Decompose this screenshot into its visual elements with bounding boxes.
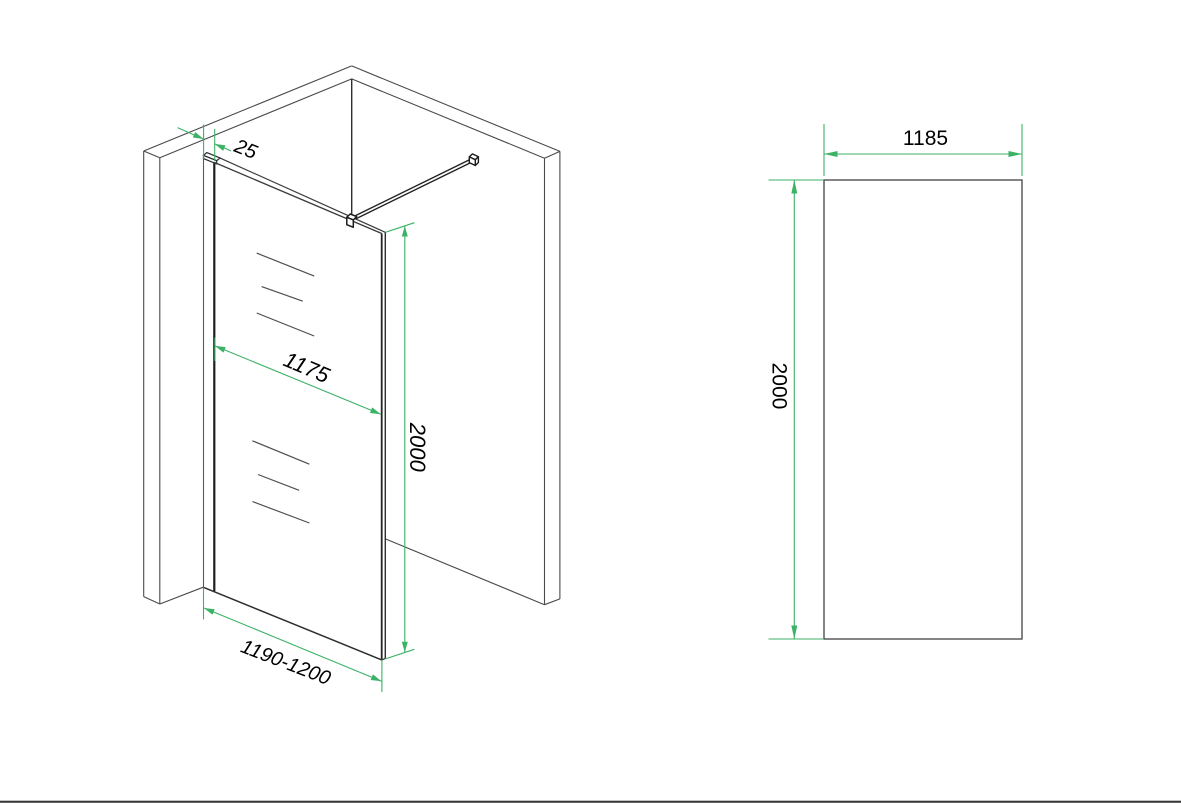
svg-text:1185: 1185 (903, 127, 948, 150)
svg-text:2000: 2000 (405, 422, 430, 473)
svg-text:2000: 2000 (768, 363, 791, 410)
